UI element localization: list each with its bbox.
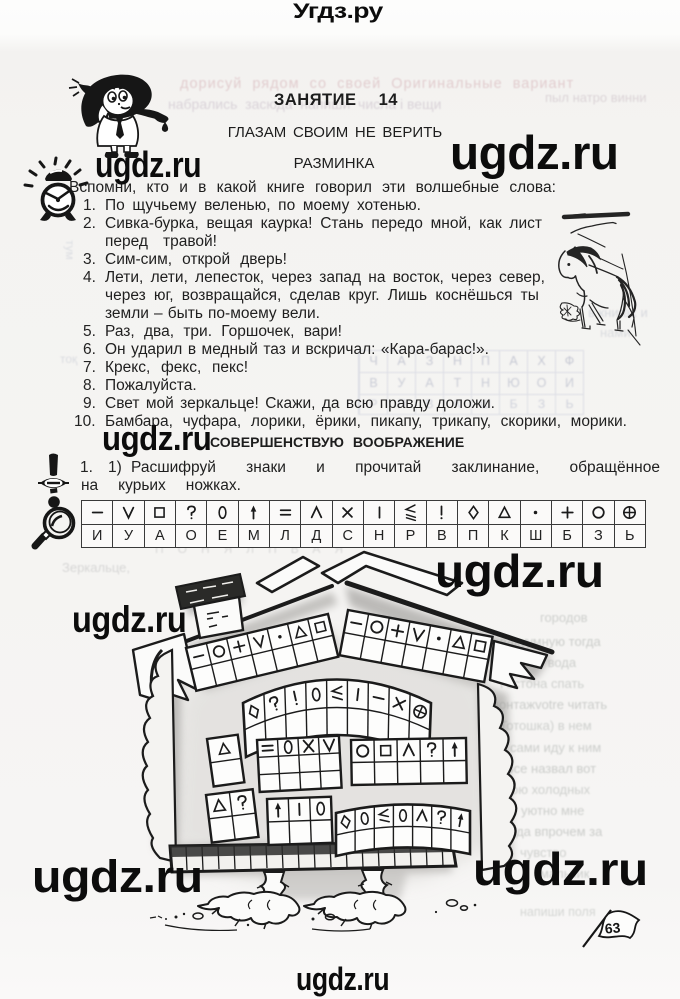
svg-text:63: 63 <box>604 919 621 936</box>
